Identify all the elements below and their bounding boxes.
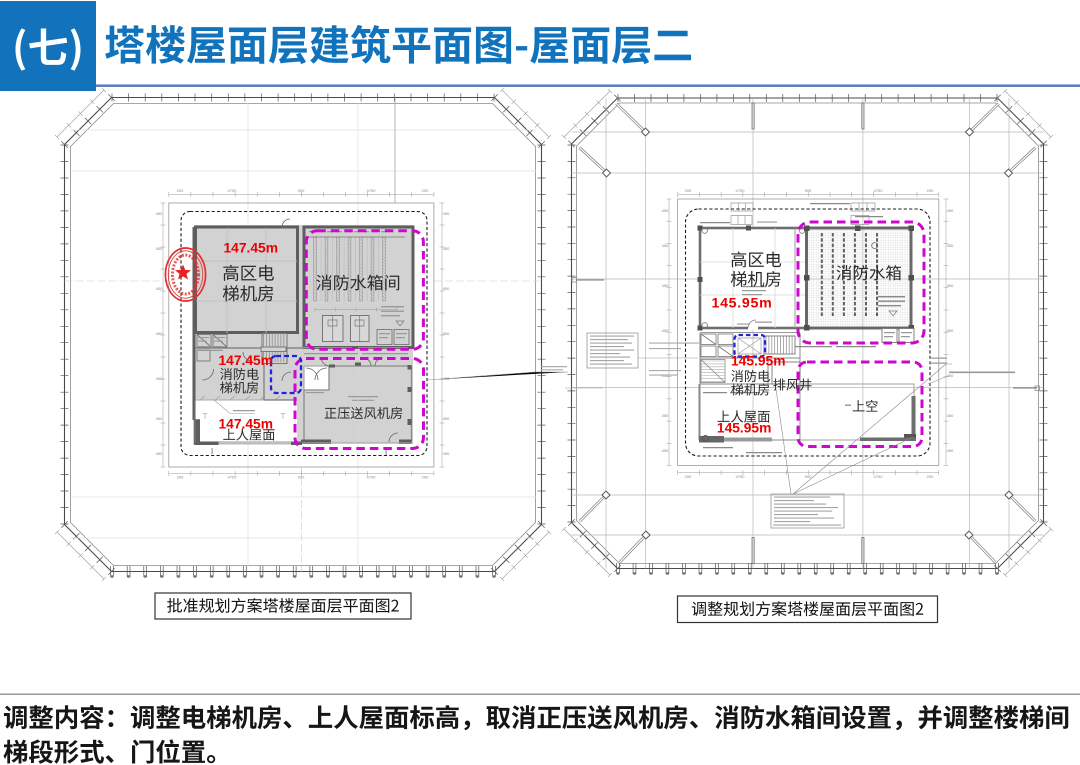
svg-text:4750: 4750 bbox=[228, 475, 238, 480]
svg-text:450: 450 bbox=[947, 413, 954, 418]
svg-text:900: 900 bbox=[805, 474, 812, 479]
svg-text:450: 450 bbox=[443, 246, 450, 251]
svg-text:450: 450 bbox=[662, 243, 669, 248]
svg-text:450: 450 bbox=[947, 208, 954, 213]
svg-text:200: 200 bbox=[685, 188, 692, 193]
svg-text:450: 450 bbox=[443, 286, 450, 291]
svg-text:450: 450 bbox=[156, 451, 163, 456]
svg-text:4750: 4750 bbox=[367, 188, 377, 193]
svg-text:900: 900 bbox=[298, 188, 305, 193]
svg-text:900: 900 bbox=[805, 188, 812, 193]
svg-text:4750: 4750 bbox=[874, 474, 884, 479]
svg-text:4750: 4750 bbox=[736, 188, 746, 193]
svg-text:200: 200 bbox=[422, 475, 429, 480]
svg-text:200: 200 bbox=[422, 188, 429, 193]
svg-text:200: 200 bbox=[177, 188, 184, 193]
svg-text:145.95m: 145.95m bbox=[712, 295, 773, 311]
svg-text:450: 450 bbox=[947, 448, 954, 453]
svg-text:450: 450 bbox=[947, 373, 954, 378]
svg-text:145.95m: 145.95m bbox=[731, 354, 785, 369]
svg-text:147.45m: 147.45m bbox=[224, 241, 278, 256]
svg-text:450: 450 bbox=[947, 328, 954, 333]
svg-text:450: 450 bbox=[662, 283, 669, 288]
svg-text:200: 200 bbox=[685, 474, 692, 479]
svg-text:4750: 4750 bbox=[874, 188, 884, 193]
svg-text:200: 200 bbox=[927, 474, 934, 479]
svg-text:450: 450 bbox=[662, 448, 669, 453]
svg-text:450: 450 bbox=[443, 331, 450, 336]
svg-text:450: 450 bbox=[662, 328, 669, 333]
svg-text:450: 450 bbox=[156, 331, 163, 336]
svg-text:450: 450 bbox=[156, 246, 163, 251]
svg-text:450: 450 bbox=[443, 416, 450, 421]
svg-text:4750: 4750 bbox=[736, 474, 746, 479]
svg-text:450: 450 bbox=[662, 208, 669, 213]
svg-text:450: 450 bbox=[156, 211, 163, 216]
svg-text:4750: 4750 bbox=[228, 188, 238, 193]
svg-text:450: 450 bbox=[443, 451, 450, 456]
svg-text:900: 900 bbox=[298, 475, 305, 480]
svg-text:450: 450 bbox=[156, 376, 163, 381]
svg-text:450: 450 bbox=[443, 211, 450, 216]
svg-text:200: 200 bbox=[927, 188, 934, 193]
svg-text:147.45m: 147.45m bbox=[219, 353, 273, 368]
svg-text:450: 450 bbox=[947, 283, 954, 288]
svg-text:450: 450 bbox=[662, 413, 669, 418]
svg-text:450: 450 bbox=[947, 243, 954, 248]
svg-text:450: 450 bbox=[156, 416, 163, 421]
svg-text:450: 450 bbox=[156, 286, 163, 291]
svg-text:145.95m: 145.95m bbox=[717, 420, 771, 435]
svg-text:4750: 4750 bbox=[367, 475, 377, 480]
svg-text:200: 200 bbox=[177, 475, 184, 480]
